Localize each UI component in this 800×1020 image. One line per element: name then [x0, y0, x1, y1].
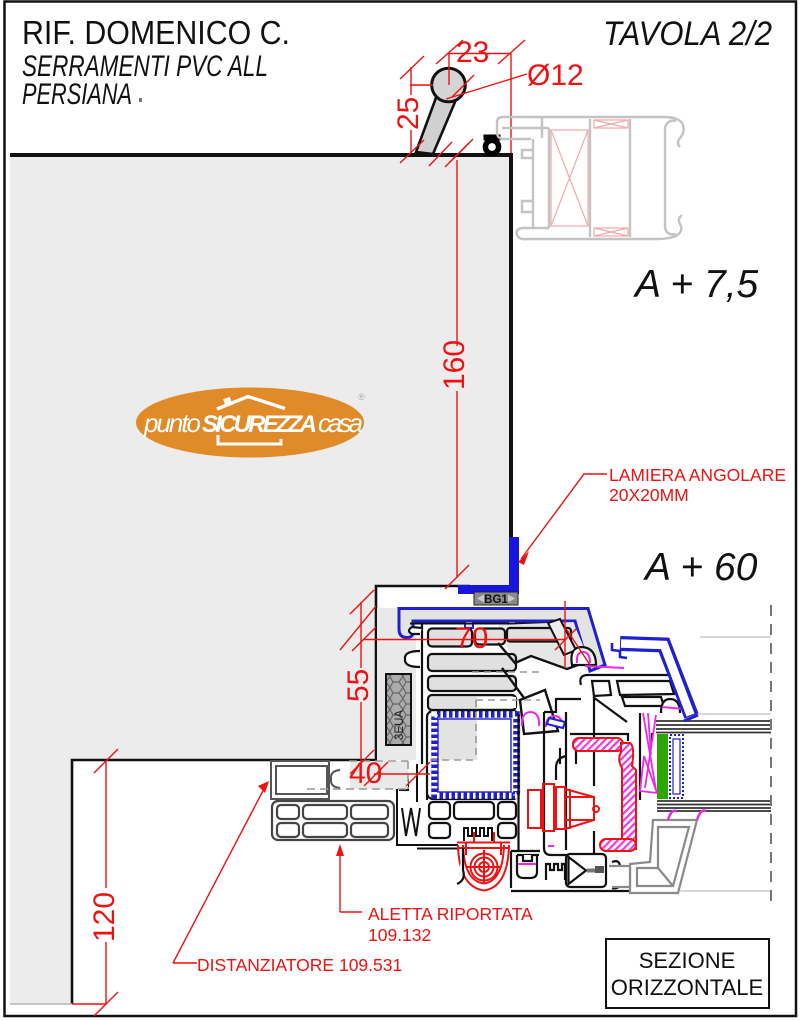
svg-text:109.132: 109.132 [368, 925, 431, 945]
svg-text:SEZIONE: SEZIONE [639, 948, 736, 973]
svg-text:23: 23 [456, 36, 489, 69]
svg-text:55: 55 [342, 669, 375, 702]
svg-text:TAVOLA 2/2: TAVOLA 2/2 [603, 15, 772, 53]
svg-text:®: ® [358, 392, 365, 402]
svg-text:160: 160 [438, 340, 471, 390]
svg-text:DISTANZIATORE 109.531: DISTANZIATORE 109.531 [197, 955, 402, 975]
svg-text:casa: casa [318, 408, 363, 438]
svg-text:120: 120 [88, 892, 121, 942]
svg-text:3EUA: 3EUA [394, 710, 406, 740]
svg-text:punto: punto [143, 408, 201, 438]
svg-text:LAMIERA ANGOLARE: LAMIERA ANGOLARE [609, 465, 786, 485]
svg-text:70: 70 [455, 622, 488, 655]
svg-text:ALETTA RIPORTATA: ALETTA RIPORTATA [368, 904, 533, 924]
svg-text:BG1: BG1 [484, 594, 508, 606]
svg-text:RIF. DOMENICO C.: RIF. DOMENICO C. [22, 14, 290, 51]
svg-text:SICUREZZA: SICUREZZA [202, 411, 317, 438]
svg-text:A + 7,5: A + 7,5 [633, 263, 759, 306]
svg-text:ORIZZONTALE: ORIZZONTALE [611, 975, 763, 1000]
svg-text:A + 60: A + 60 [643, 546, 758, 589]
svg-text:Ø12: Ø12 [527, 59, 584, 92]
svg-text:PERSIANA: PERSIANA [22, 78, 132, 111]
svg-text:20X20MM: 20X20MM [609, 485, 689, 505]
svg-text:25: 25 [392, 97, 425, 130]
svg-text:40: 40 [349, 757, 382, 790]
